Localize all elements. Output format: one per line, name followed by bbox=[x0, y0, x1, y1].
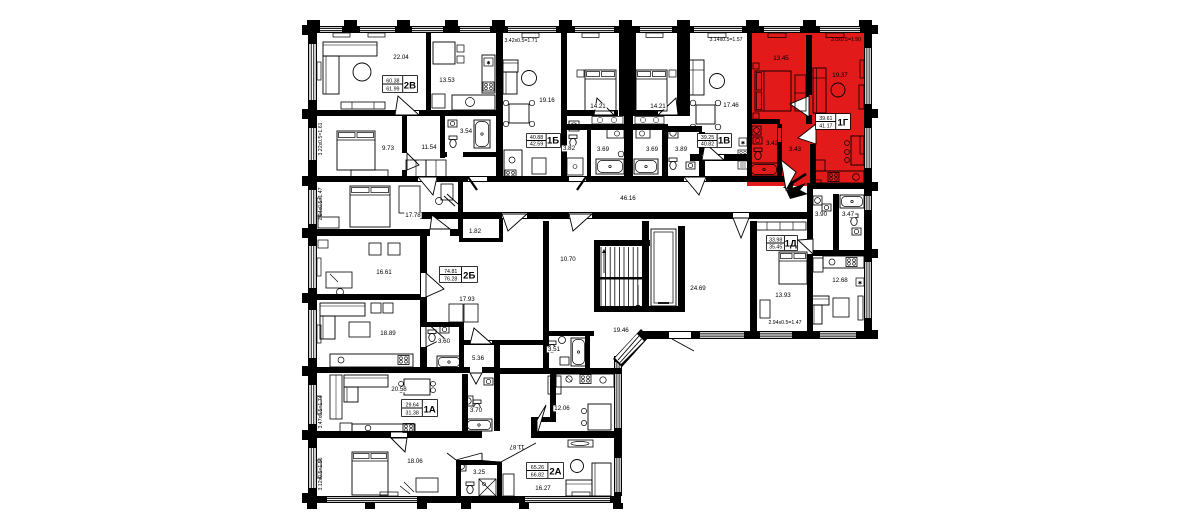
svg-text:29.64: 29.64 bbox=[406, 403, 419, 409]
svg-text:19.37: 19.37 bbox=[832, 72, 848, 79]
svg-text:40.82: 40.82 bbox=[701, 141, 714, 147]
svg-text:14.21: 14.21 bbox=[590, 103, 606, 110]
svg-text:13.53: 13.53 bbox=[439, 77, 455, 84]
svg-text:19.46: 19.46 bbox=[613, 327, 629, 334]
svg-text:41.17: 41.17 bbox=[819, 123, 832, 129]
svg-text:2В: 2В bbox=[404, 81, 416, 92]
svg-text:1А: 1А bbox=[424, 405, 436, 416]
svg-text:31.38: 31.38 bbox=[406, 410, 419, 416]
svg-text:3.69: 3.69 bbox=[597, 146, 610, 153]
svg-text:16.61: 16.61 bbox=[376, 269, 392, 276]
svg-text:✱: ✱ bbox=[486, 61, 490, 67]
svg-text:35.45: 35.45 bbox=[769, 244, 782, 250]
svg-text:33.98: 33.98 bbox=[769, 238, 782, 244]
svg-text:13.45: 13.45 bbox=[773, 55, 789, 62]
svg-text:2А: 2А bbox=[549, 467, 561, 478]
svg-text:1Г: 1Г bbox=[838, 118, 849, 129]
svg-text:42.59: 42.59 bbox=[530, 141, 543, 147]
svg-text:3.25: 3.25 bbox=[473, 469, 486, 476]
svg-text:74.81: 74.81 bbox=[444, 269, 457, 275]
svg-text:39.25: 39.25 bbox=[701, 135, 714, 141]
svg-text:1.82: 1.82 bbox=[469, 228, 482, 235]
svg-text:61.99: 61.99 bbox=[386, 86, 399, 92]
svg-text:3.42: 3.42 bbox=[766, 140, 779, 147]
svg-text:3.12х0.5=1.56: 3.12х0.5=1.56 bbox=[318, 457, 324, 490]
svg-text:3.82: 3.82 bbox=[563, 145, 576, 152]
svg-text:17.46: 17.46 bbox=[723, 102, 739, 109]
svg-text:18.89: 18.89 bbox=[380, 330, 396, 337]
svg-text:60.38: 60.38 bbox=[386, 79, 399, 85]
svg-text:3.47: 3.47 bbox=[842, 211, 855, 218]
svg-text:3.60: 3.60 bbox=[438, 338, 451, 345]
svg-text:5.36: 5.36 bbox=[472, 355, 485, 362]
svg-text:3.89: 3.89 bbox=[675, 146, 688, 153]
svg-text:76.28: 76.28 bbox=[444, 276, 457, 282]
svg-text:40.88: 40.88 bbox=[530, 135, 543, 141]
svg-text:✱: ✱ bbox=[741, 141, 745, 147]
svg-text:17.93: 17.93 bbox=[459, 296, 475, 303]
svg-text:3.69: 3.69 bbox=[646, 146, 659, 153]
svg-text:14.21: 14.21 bbox=[650, 103, 666, 110]
svg-text:10.70: 10.70 bbox=[560, 256, 576, 263]
svg-text:13.93: 13.93 bbox=[775, 292, 791, 299]
svg-text:11.87: 11.87 bbox=[509, 443, 525, 450]
svg-text:2.94х0.5=1.47: 2.94х0.5=1.47 bbox=[318, 187, 324, 220]
svg-text:24.69: 24.69 bbox=[690, 285, 706, 292]
svg-text:3.47х0.5=1.74: 3.47х0.5=1.74 bbox=[318, 395, 324, 428]
svg-text:9.73: 9.73 bbox=[382, 145, 395, 152]
svg-text:3.90: 3.90 bbox=[815, 211, 828, 218]
svg-text:12.06: 12.06 bbox=[554, 405, 570, 412]
svg-text:3.14х0.5=1.57: 3.14х0.5=1.57 bbox=[709, 37, 742, 43]
svg-text:3.42х0.5=1.71: 3.42х0.5=1.71 bbox=[504, 38, 537, 44]
svg-text:3.70: 3.70 bbox=[470, 407, 483, 414]
svg-text:✱: ✱ bbox=[814, 183, 818, 189]
svg-text:18.06: 18.06 bbox=[407, 458, 423, 465]
svg-text:3.43: 3.43 bbox=[789, 146, 802, 153]
svg-text:66.82: 66.82 bbox=[531, 472, 544, 478]
svg-text:19.16: 19.16 bbox=[539, 97, 555, 104]
svg-text:3.54: 3.54 bbox=[460, 128, 473, 135]
svg-text:46.16: 46.16 bbox=[620, 195, 636, 202]
svg-text:65.26: 65.26 bbox=[531, 465, 544, 471]
svg-text:39.61: 39.61 bbox=[819, 116, 832, 122]
svg-text:1Б: 1Б bbox=[547, 136, 559, 147]
svg-text:12.68: 12.68 bbox=[832, 277, 848, 284]
svg-text:1В: 1В bbox=[718, 136, 730, 147]
svg-text:3.22х0.5=1.61: 3.22х0.5=1.61 bbox=[318, 122, 324, 155]
svg-text:20.58: 20.58 bbox=[391, 386, 407, 393]
svg-text:1Д: 1Д bbox=[785, 239, 797, 250]
svg-text:✱: ✱ bbox=[858, 281, 862, 287]
svg-text:16.27: 16.27 bbox=[535, 485, 551, 492]
svg-text:3.51: 3.51 bbox=[548, 346, 561, 353]
svg-text:2Б: 2Б bbox=[463, 271, 475, 282]
svg-text:2.94х0.5=1.47: 2.94х0.5=1.47 bbox=[768, 320, 801, 326]
svg-text:22.04: 22.04 bbox=[393, 54, 409, 61]
svg-text:11.54: 11.54 bbox=[421, 144, 437, 151]
svg-text:17.78: 17.78 bbox=[405, 212, 421, 219]
svg-text:3.0х0.5=1.50: 3.0х0.5=1.50 bbox=[831, 37, 861, 43]
